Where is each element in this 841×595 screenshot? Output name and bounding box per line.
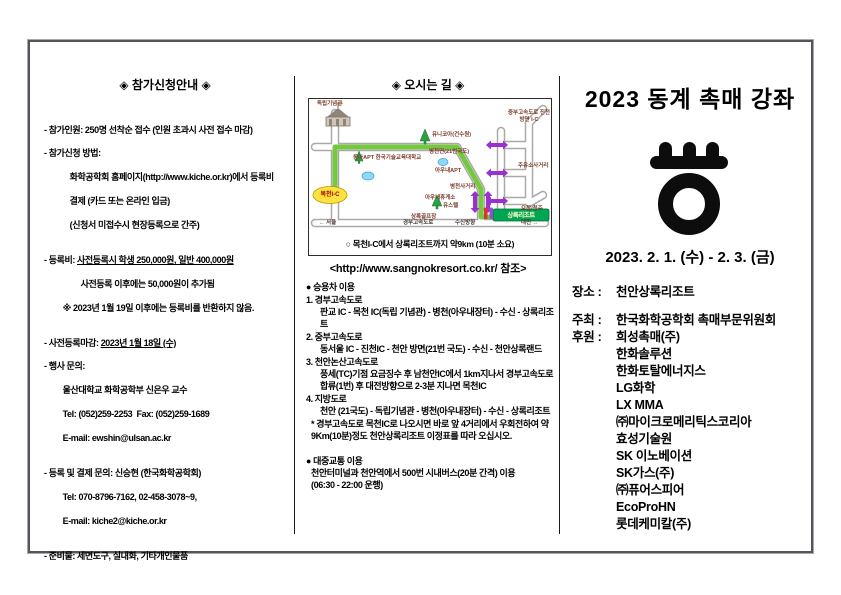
deadline: - 사전등록마감: 2023년 1월 18일 (수) bbox=[44, 337, 290, 349]
fee-info: - 등록비: 사전등록시 학생 250,000원, 일반 400,000원 사전… bbox=[44, 254, 290, 326]
sponsor-item: SK 이노베이션 bbox=[616, 448, 812, 465]
sponsor-item: LG화학 bbox=[616, 380, 812, 397]
directions-map: 독립기념관 유니코아(건수원) 동아APT 한국기술교육대학교 병천면(21번국… bbox=[308, 98, 552, 256]
apply-method-line3: 결제 (카드 또는 온라인 입금) bbox=[57, 196, 170, 206]
fee-refund-note: ※ 2023년 1월 19일 이후에는 등록비를 반환하지 않음. bbox=[57, 303, 254, 313]
sponsor-item: ㈜마이크로메리틱스코리아 bbox=[616, 414, 812, 431]
sponsor-item: ㈜퓨어스피어 bbox=[616, 482, 812, 499]
map-label-gas-crossing: 주유소사거리 bbox=[518, 163, 548, 169]
map-label-unikoa: 유니코아(건수원) bbox=[432, 132, 471, 138]
catalysis-society-logo bbox=[650, 142, 728, 236]
route4-body: 천안 (21국도) - 독립기념관 - 병천(아우내장터) - 수신 - 상록리… bbox=[306, 405, 556, 417]
car-heading: ● 승용차 이용 bbox=[306, 281, 556, 293]
venue-value: 천안상록리조트 bbox=[616, 284, 694, 301]
map-label-aunae-apt: 아우내APT bbox=[435, 168, 461, 174]
transit-heading: ● 대중교통 이용 bbox=[306, 455, 556, 467]
route1-body: 판교 IC - 목천 IC(독립 기념관) - 병천(아우내장터) - 수신 -… bbox=[306, 306, 556, 330]
car-note: * 경부고속도로 목천IC로 나오시면 바로 앞 4거리에서 우회전하여 약 9… bbox=[306, 418, 556, 442]
participants-line: - 참가인원: 250명 선착순 접수 (인원 초과시 사전 접수 마감) bbox=[44, 124, 290, 136]
map-label-mokcheon-ic: 목천I-C bbox=[313, 192, 347, 199]
map-label-gyeongbu-expwy: 경부고속도로 bbox=[403, 220, 433, 226]
sponsor-item: LX MMA bbox=[616, 397, 812, 414]
sponsor-item: EcoProHN bbox=[616, 499, 812, 516]
registration-heading: ◈ 참가신청안내 ◈ bbox=[42, 76, 288, 93]
map-label-koreatech: 동아APT 한국기술교육대학교 bbox=[353, 155, 421, 161]
map-pond-icon bbox=[438, 159, 448, 166]
route1-head: 1. 경부고속도로 bbox=[306, 294, 556, 306]
apply-method-line4: (신청서 미접수시 현장등록으로 간주) bbox=[57, 220, 200, 230]
map-distance-caption: ○ 목천I-C에서 상록리조트까지 약9km (10분 소요) bbox=[309, 237, 551, 253]
apply-method-line2: 화학공학회 홈페이지(http://www.kiche.or.kr)에서 등록비 bbox=[57, 172, 274, 182]
column-divider-right bbox=[559, 76, 560, 534]
host-label: 주최 : bbox=[572, 312, 616, 329]
payment-contact-email: E-mail: kiche2@kiche.or.kr bbox=[57, 516, 167, 526]
map-label-byeongcheon-road: 병천면(21번국도) bbox=[429, 149, 469, 155]
venue-row: 장소 : 천안상록리조트 bbox=[572, 284, 812, 301]
map-label-seoul: ← 서울 bbox=[319, 220, 336, 226]
fee-prefix: - 등록비: bbox=[44, 255, 77, 265]
sponsor-item: SK가스(주) bbox=[616, 465, 812, 482]
sponsor-item: 한화솔루션 bbox=[616, 346, 812, 363]
event-info: 장소 : 천안상록리조트 주최 : 한국화학공학회 촉매부문위원회 후원 : 희… bbox=[572, 284, 812, 533]
deadline-date: 2023년 1월 18일 (수) bbox=[101, 338, 176, 348]
sponsor-item: 효성기술원 bbox=[616, 431, 812, 448]
map-label-byeongcheon-crossing: 병천사거리 bbox=[450, 184, 475, 190]
fee-extra: 사전등록 이후에는 50,000원이 추가됨 bbox=[57, 279, 215, 289]
host-value: 한국화학공학회 촉매부문위원회 bbox=[616, 312, 776, 329]
route2-head: 2. 중부고속도로 bbox=[306, 331, 556, 343]
map-label-resort: 상록리조트 bbox=[494, 212, 548, 220]
route3-head: 3. 천안논산고속도로 bbox=[306, 356, 556, 368]
event-contact-title: - 행사 문의: bbox=[44, 361, 85, 371]
route3-body: 풍세(TC)기점 요금징수 후 남천안IC에서 1km지나서 경부고속도로 합류… bbox=[306, 368, 556, 392]
event-contact: - 행사 문의: 울산대학교 화학공학부 신은우 교수 Tel: (052)25… bbox=[44, 360, 290, 456]
sponsor-item: 롯데케미칼(주) bbox=[616, 516, 812, 533]
venue-label: 장소 : bbox=[572, 284, 616, 301]
payment-contact-title: - 등록 및 결제 문의: 신승현 (한국화학공학회) bbox=[44, 468, 201, 478]
map-label-youth-hostel: 유스텔 bbox=[443, 203, 458, 209]
event-contact-email: E-mail: ewshin@ulsan.ac.kr bbox=[57, 433, 171, 443]
event-contact-tel: Tel: (052)259-2253 Fax: (052)259-1689 bbox=[57, 409, 210, 419]
sponsor-row: 후원 : 희성촉매(주) bbox=[572, 329, 812, 346]
map-label-daejeon: 대전 → bbox=[521, 220, 538, 226]
map-reference-url: <http://www.sangnokresort.co.kr/ 참조> bbox=[302, 260, 554, 276]
event-dates: 2023. 2. 1. (수) - 2. 3. (금) bbox=[567, 246, 813, 267]
apply-method-title: - 참가신청 방법: bbox=[44, 148, 101, 158]
brochure-sheet: ◈ 참가신청안내 ◈ - 참가인원: 250명 선착순 접수 (인원 초과시 사… bbox=[28, 40, 813, 553]
sponsor-label: 후원 : bbox=[572, 329, 616, 346]
supplies-line: - 준비물: 세면도구, 실내화, 기타개인물품 bbox=[44, 550, 290, 562]
page: { "left": { "title": "◈ 참가신청안내 ◈", "p1":… bbox=[0, 0, 841, 595]
map-label-independence-hall: 독립기념관 bbox=[317, 101, 342, 107]
transit-body-line1: 천안터미널과 천안역에서 500번 시내버스(20분 간격) 이용 bbox=[306, 467, 556, 479]
transit-body-line2: (06:30 - 22:00 운행) bbox=[306, 479, 556, 491]
transit-section: ● 대중교통 이용 천안터미널과 천안역에서 500번 시내버스(20분 간격)… bbox=[306, 455, 556, 491]
map-label-jungbu-ic: 중부고속도로 진천 방면 I-C bbox=[507, 110, 551, 123]
column-divider-left bbox=[294, 76, 295, 534]
map-pond-icon bbox=[362, 172, 374, 180]
map-drawing: 독립기념관 유니코아(건수원) 동아APT 한국기술교육대학교 병천면(21번국… bbox=[309, 99, 551, 237]
sponsor-item: 희성촉매(주) bbox=[616, 329, 680, 346]
payment-contact-tel: Tel: 070-8796-7162, 02-458-3078~9, bbox=[57, 492, 197, 502]
logo-ring bbox=[658, 173, 720, 235]
event-title: 2023 동계 촉매 강좌 bbox=[567, 80, 813, 114]
fee-amounts: 사전등록시 학생 250,000원, 일반 400,000원 bbox=[77, 255, 234, 265]
payment-contact: - 등록 및 결제 문의: 신승현 (한국화학공학회) Tel: 070-879… bbox=[44, 467, 290, 539]
apply-method: - 참가신청 방법: 화학공학회 홈페이지(http://www.kiche.o… bbox=[44, 147, 290, 243]
directions-text: ● 승용차 이용 1. 경부고속도로 판교 IC - 목천 IC(독립 기념관)… bbox=[306, 280, 556, 491]
directions-heading: ◈ 오시는 길 ◈ bbox=[302, 76, 554, 93]
deadline-prefix: - 사전등록마감: bbox=[44, 338, 101, 348]
map-label-aunae-rest: 아우내휴게소 bbox=[425, 195, 455, 201]
host-row: 주최 : 한국화학공학회 촉매부문위원회 bbox=[572, 312, 812, 329]
event-contact-name: 울산대학교 화학공학부 신은우 교수 bbox=[57, 385, 188, 395]
route4-head: 4. 지방도로 bbox=[306, 393, 556, 405]
sponsor-item: 한화토탈에너지스 bbox=[616, 363, 812, 380]
registration-info: - 참가인원: 250명 선착순 접수 (인원 초과시 사전 접수 마감) - … bbox=[44, 124, 290, 573]
route2-body: 동서울 IC - 진천IC - 천안 방면(21번 국도) - 수신 - 천안상… bbox=[306, 343, 556, 355]
logo-bar bbox=[650, 156, 728, 169]
map-label-susin: 수신방향 bbox=[455, 220, 475, 226]
